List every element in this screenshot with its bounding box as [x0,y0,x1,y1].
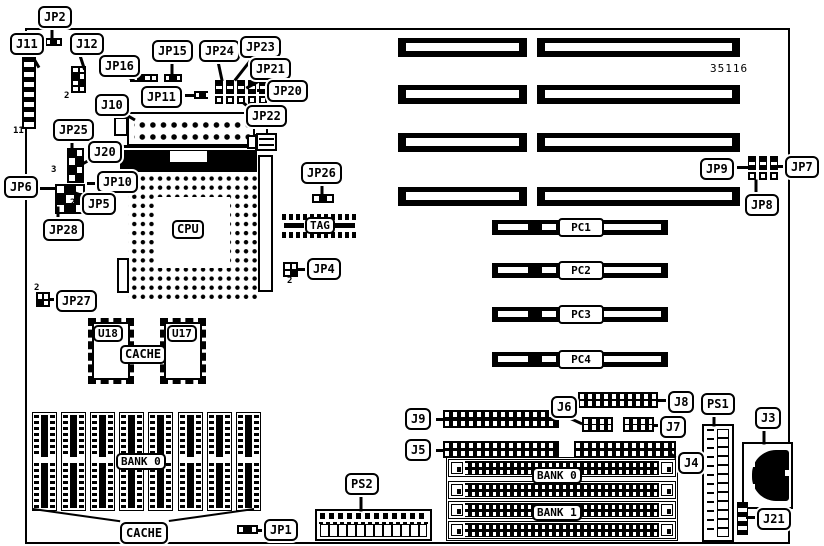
callout-j21: J21 [757,508,791,530]
callout-jp15: JP15 [152,40,193,62]
slot-pc1-label: PC1 [558,218,604,237]
callout-cache-bottom: CACHE [120,522,168,544]
tag-label: TAG [305,217,335,234]
cache-dip-socket [178,412,203,511]
ps1-power-connector [702,424,734,542]
jumper-block-jp9-jp7-jp8 [746,155,780,181]
socket-tab [117,258,129,293]
callout-jp28: JP28 [43,219,84,241]
callout-j9: J9 [405,408,431,430]
isa-slot [537,38,740,57]
callout-jp21: JP21 [250,58,291,80]
jp27-pin-count: 2 [34,284,39,293]
jp1-connector [237,525,258,534]
isa-slot [537,133,740,152]
slot-pc2: PC2 [492,263,668,278]
leader-jp26 [321,186,324,197]
slot-pc4-label: PC4 [558,350,604,369]
leader-jp25 [71,141,74,152]
osc-bracket [247,135,257,149]
j9-header [443,410,559,428]
callout-jp5: JP5 [82,193,116,215]
leader-jp7 [772,165,786,168]
j11-pin-count: 11 [13,127,24,136]
jp27-connector [36,292,50,307]
isa-slot [398,187,527,206]
motherboard-diagram: 35116 PC1 PC2 PC3 PC4 [0,0,824,546]
callout-j5: J5 [405,439,431,461]
callout-j3: J3 [755,407,781,429]
isa-slot [398,133,527,152]
slot-pc3: PC3 [492,307,668,322]
cluster-pin2: 2 [70,199,75,208]
u18-label: U18 [93,325,123,342]
slot-pc2-label: PC2 [558,261,604,280]
j8-header [578,392,658,408]
callout-jp4: JP4 [307,258,341,280]
leader-j9 [436,418,445,421]
j7-header [623,417,654,432]
slot-pc3-label: PC3 [558,305,604,324]
isa-slot [398,38,527,57]
callout-ps2: PS2 [345,473,379,495]
isa-slot [537,85,740,104]
callout-jp20: JP20 [267,80,308,102]
jp11-connector [194,91,208,99]
j10-header [127,112,258,146]
zif-socket-bar [120,145,257,172]
isa-slot [398,85,527,104]
simm-bank1-label: BANK 1 [532,504,582,521]
callout-j7: J7 [660,416,686,438]
callout-j12: J12 [70,33,104,55]
u17-label: U17 [167,325,197,342]
ps2-power-connector [315,509,432,541]
j4-header [574,441,676,458]
callout-ps1: PS1 [701,393,735,415]
cache-dip-socket [207,412,232,511]
slot-pc1: PC1 [492,220,668,235]
j12-pin-count: 2 [64,92,69,101]
callout-jp27: JP27 [56,290,97,312]
cache-dip-socket [61,412,86,511]
j6-header [582,417,613,432]
callout-jp8: JP8 [745,194,779,216]
callout-jp2: JP2 [38,6,72,28]
dip-bank0-label: BANK 0 [116,453,166,470]
cache-dip-socket [236,412,261,511]
cluster-pin3: 3 [51,166,56,175]
callout-jp23: JP23 [240,36,281,58]
part-number: 35116 [710,62,748,75]
cache-mid-label: CACHE [120,345,166,364]
leader-jp9 [737,166,748,169]
jp4-pin-count: 2 [287,277,292,286]
j5-header [443,441,559,458]
jp2-connector [45,38,62,46]
j10-bracket-left [114,117,128,136]
callout-j20: J20 [88,141,122,163]
callout-jp1: JP1 [264,519,298,541]
cache-dip-socket [90,412,115,511]
callout-jp26: JP26 [301,162,342,184]
callout-jp6: JP6 [4,176,38,198]
callout-j10: J10 [95,94,129,116]
cache-dip-socket [32,412,57,511]
isa-slot [537,187,740,206]
slot-pc4: PC4 [492,352,668,367]
leader-jp11 [185,94,195,97]
callout-j11: J11 [10,33,44,55]
callout-jp9: JP9 [700,158,734,180]
leader-jp15 [171,60,174,77]
leader-j5 [436,449,445,452]
oscillator [256,133,277,151]
callout-jp25: JP25 [53,119,94,141]
leader-jp6 [39,187,55,190]
callout-jp11: JP11 [141,86,182,108]
callout-jp22: JP22 [246,105,287,127]
callout-jp7: JP7 [785,156,819,178]
leader-j3 [763,428,766,445]
callout-jp10: JP10 [97,171,138,193]
callout-j6: J6 [551,396,577,418]
callout-j4: J4 [678,452,704,474]
callout-jp16: JP16 [99,55,140,77]
j11-connector [22,55,36,129]
callout-jp24: JP24 [199,40,240,62]
leader-jp2 [51,29,54,41]
simm-bank0-label: BANK 0 [532,467,582,484]
cpu-label: CPU [172,220,204,239]
jp4-connector [283,262,298,277]
j3-keyboard-connector [742,442,793,509]
zif-lever [258,155,273,292]
callout-j8: J8 [668,391,694,413]
jumper-block-jp24-jp23-jp21-jp20-jp22 [213,79,269,105]
simm-socket [448,521,676,539]
